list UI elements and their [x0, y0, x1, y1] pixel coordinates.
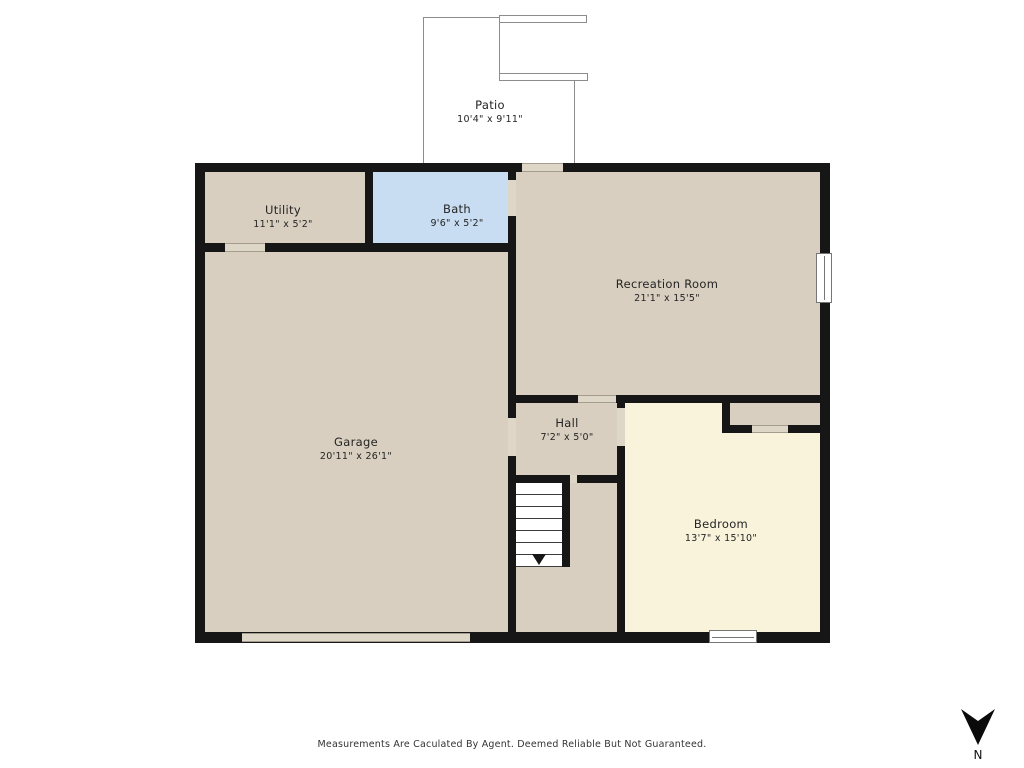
- patio-right-line: [574, 81, 575, 163]
- garage-door-band: [242, 633, 470, 642]
- room-dims: 7'2" x 5'0": [540, 432, 593, 443]
- room-name: Garage: [320, 435, 392, 449]
- door-utility-garage: [225, 243, 265, 252]
- room-name: Bath: [430, 202, 483, 216]
- room-label-patio: Patio 10'4" x 9'11": [457, 98, 523, 125]
- window-rec-room: [816, 253, 832, 303]
- compass-label: N: [956, 748, 1000, 762]
- room-label-bath: Bath 9'6" x 5'2": [430, 202, 483, 229]
- door-hall-bedroom: [617, 408, 625, 446]
- room-label-garage: Garage 20'11" x 26'1": [320, 435, 392, 462]
- north-arrow-icon: [956, 706, 1000, 746]
- door-patio-entry: [522, 163, 563, 172]
- door-rec-hall: [578, 395, 616, 403]
- wall-stairs-top-right: [577, 475, 617, 483]
- room-name: Hall: [540, 416, 593, 430]
- floorplan-canvas: Patio 10'4" x 9'11" Utility 11'1" x 5'2"…: [0, 0, 1024, 768]
- patio-mid-line: [499, 23, 500, 73]
- wall-rec-hall: [508, 395, 830, 403]
- patio-step-upper: [499, 15, 587, 23]
- wall-stairs-top: [508, 475, 570, 483]
- opening-stairs-corridor: [570, 475, 577, 483]
- room-dims: 20'11" x 26'1": [320, 451, 392, 462]
- closet-fill: [730, 403, 820, 425]
- room-label-recreation-room: Recreation Room 21'1" x 15'5": [616, 277, 718, 304]
- door-garage-hall: [508, 418, 516, 456]
- window-pane-line: [824, 256, 825, 300]
- room-name: Bedroom: [685, 517, 757, 531]
- door-bath: [508, 180, 516, 216]
- wall-outer-right: [820, 163, 830, 643]
- window-pane-line: [712, 637, 754, 638]
- room-dims: 21'1" x 15'5": [616, 293, 718, 304]
- room-name: Utility: [253, 203, 312, 217]
- patio-top-line: [423, 17, 500, 18]
- room-name: Recreation Room: [616, 277, 718, 291]
- room-label-bedroom: Bedroom 13'7" x 15'10": [685, 517, 757, 544]
- disclaimer-text: Measurements Are Caculated By Agent. Dee…: [0, 739, 1024, 750]
- room-dims: 9'6" x 5'2": [430, 218, 483, 229]
- room-dims: 10'4" x 9'11": [457, 114, 523, 125]
- wall-outer-top: [195, 163, 830, 172]
- patio-left-line: [423, 17, 424, 163]
- compass: N: [956, 706, 1000, 764]
- wall-outer-left: [195, 163, 205, 643]
- window-bedroom: [709, 630, 757, 643]
- room-dims: 13'7" x 15'10": [685, 533, 757, 544]
- stairs-down-arrow-icon: [532, 554, 546, 565]
- wall-utility-bath: [365, 172, 373, 243]
- room-label-utility: Utility 11'1" x 5'2": [253, 203, 312, 230]
- room-dims: 11'1" x 5'2": [253, 219, 312, 230]
- room-label-hall: Hall 7'2" x 5'0": [540, 416, 593, 443]
- patio-step-lower: [499, 73, 588, 81]
- door-closet: [752, 425, 788, 433]
- room-name: Patio: [457, 98, 523, 112]
- wall-stairs-right: [562, 475, 570, 567]
